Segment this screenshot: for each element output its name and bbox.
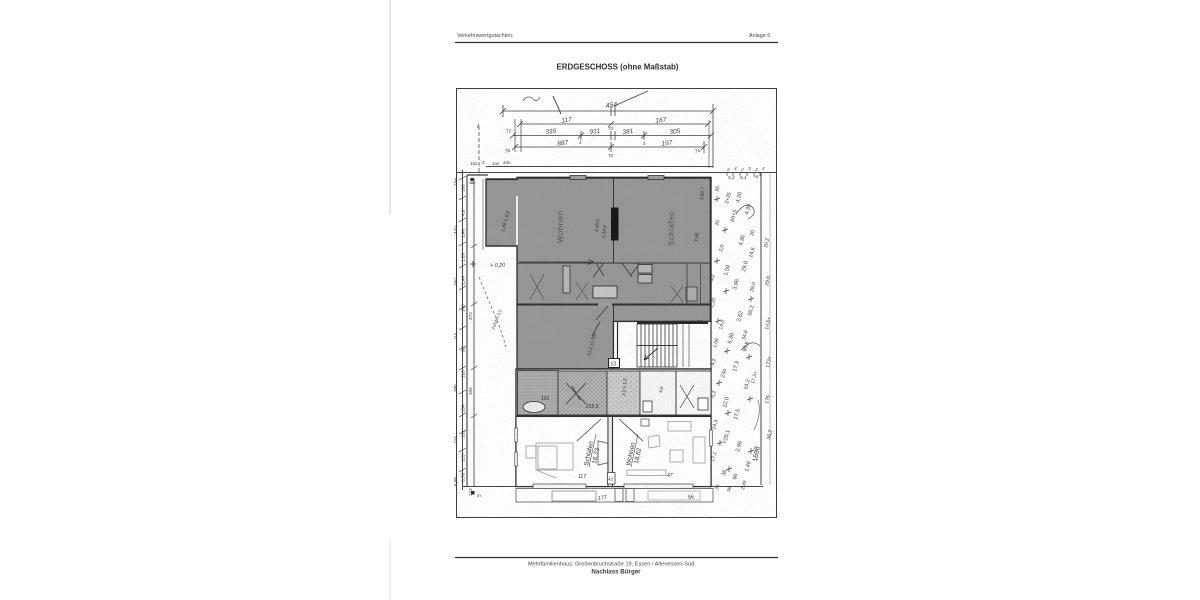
svg-text:Nachlass Bürger: Nachlass Bürger — [591, 569, 641, 576]
svg-text:Verkehrswertgutachten:: Verkehrswertgutachten: — [457, 33, 514, 39]
svg-text:Mehrfamilienhaus; Großenbruchs: Mehrfamilienhaus; Großenbruchstraße 19; … — [528, 562, 694, 568]
svg-text:ERDGESCHOSS (ohne Maßstab): ERDGESCHOSS (ohne Maßstab) — [557, 62, 679, 71]
svg-text:Anlage 6: Anlage 6 — [749, 33, 770, 39]
